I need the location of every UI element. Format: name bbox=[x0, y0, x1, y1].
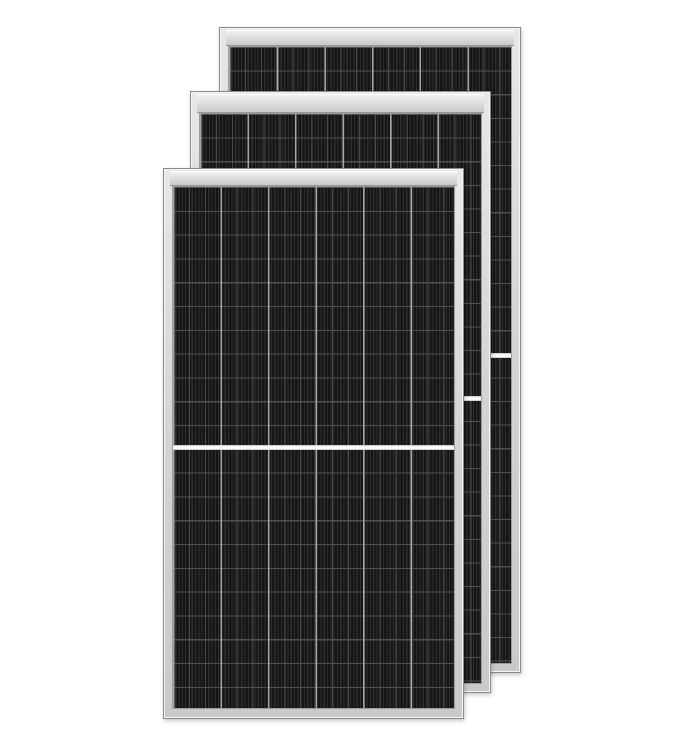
product-image-canvas bbox=[0, 0, 684, 748]
panel-top-frame-rail bbox=[170, 171, 457, 186]
panel-top-frame-rail bbox=[197, 94, 484, 113]
solar-panel-front bbox=[163, 168, 464, 719]
panel-top-frame-rail bbox=[226, 30, 514, 46]
half-cell-divider bbox=[173, 445, 454, 450]
panel-cell-grid bbox=[172, 186, 455, 709]
